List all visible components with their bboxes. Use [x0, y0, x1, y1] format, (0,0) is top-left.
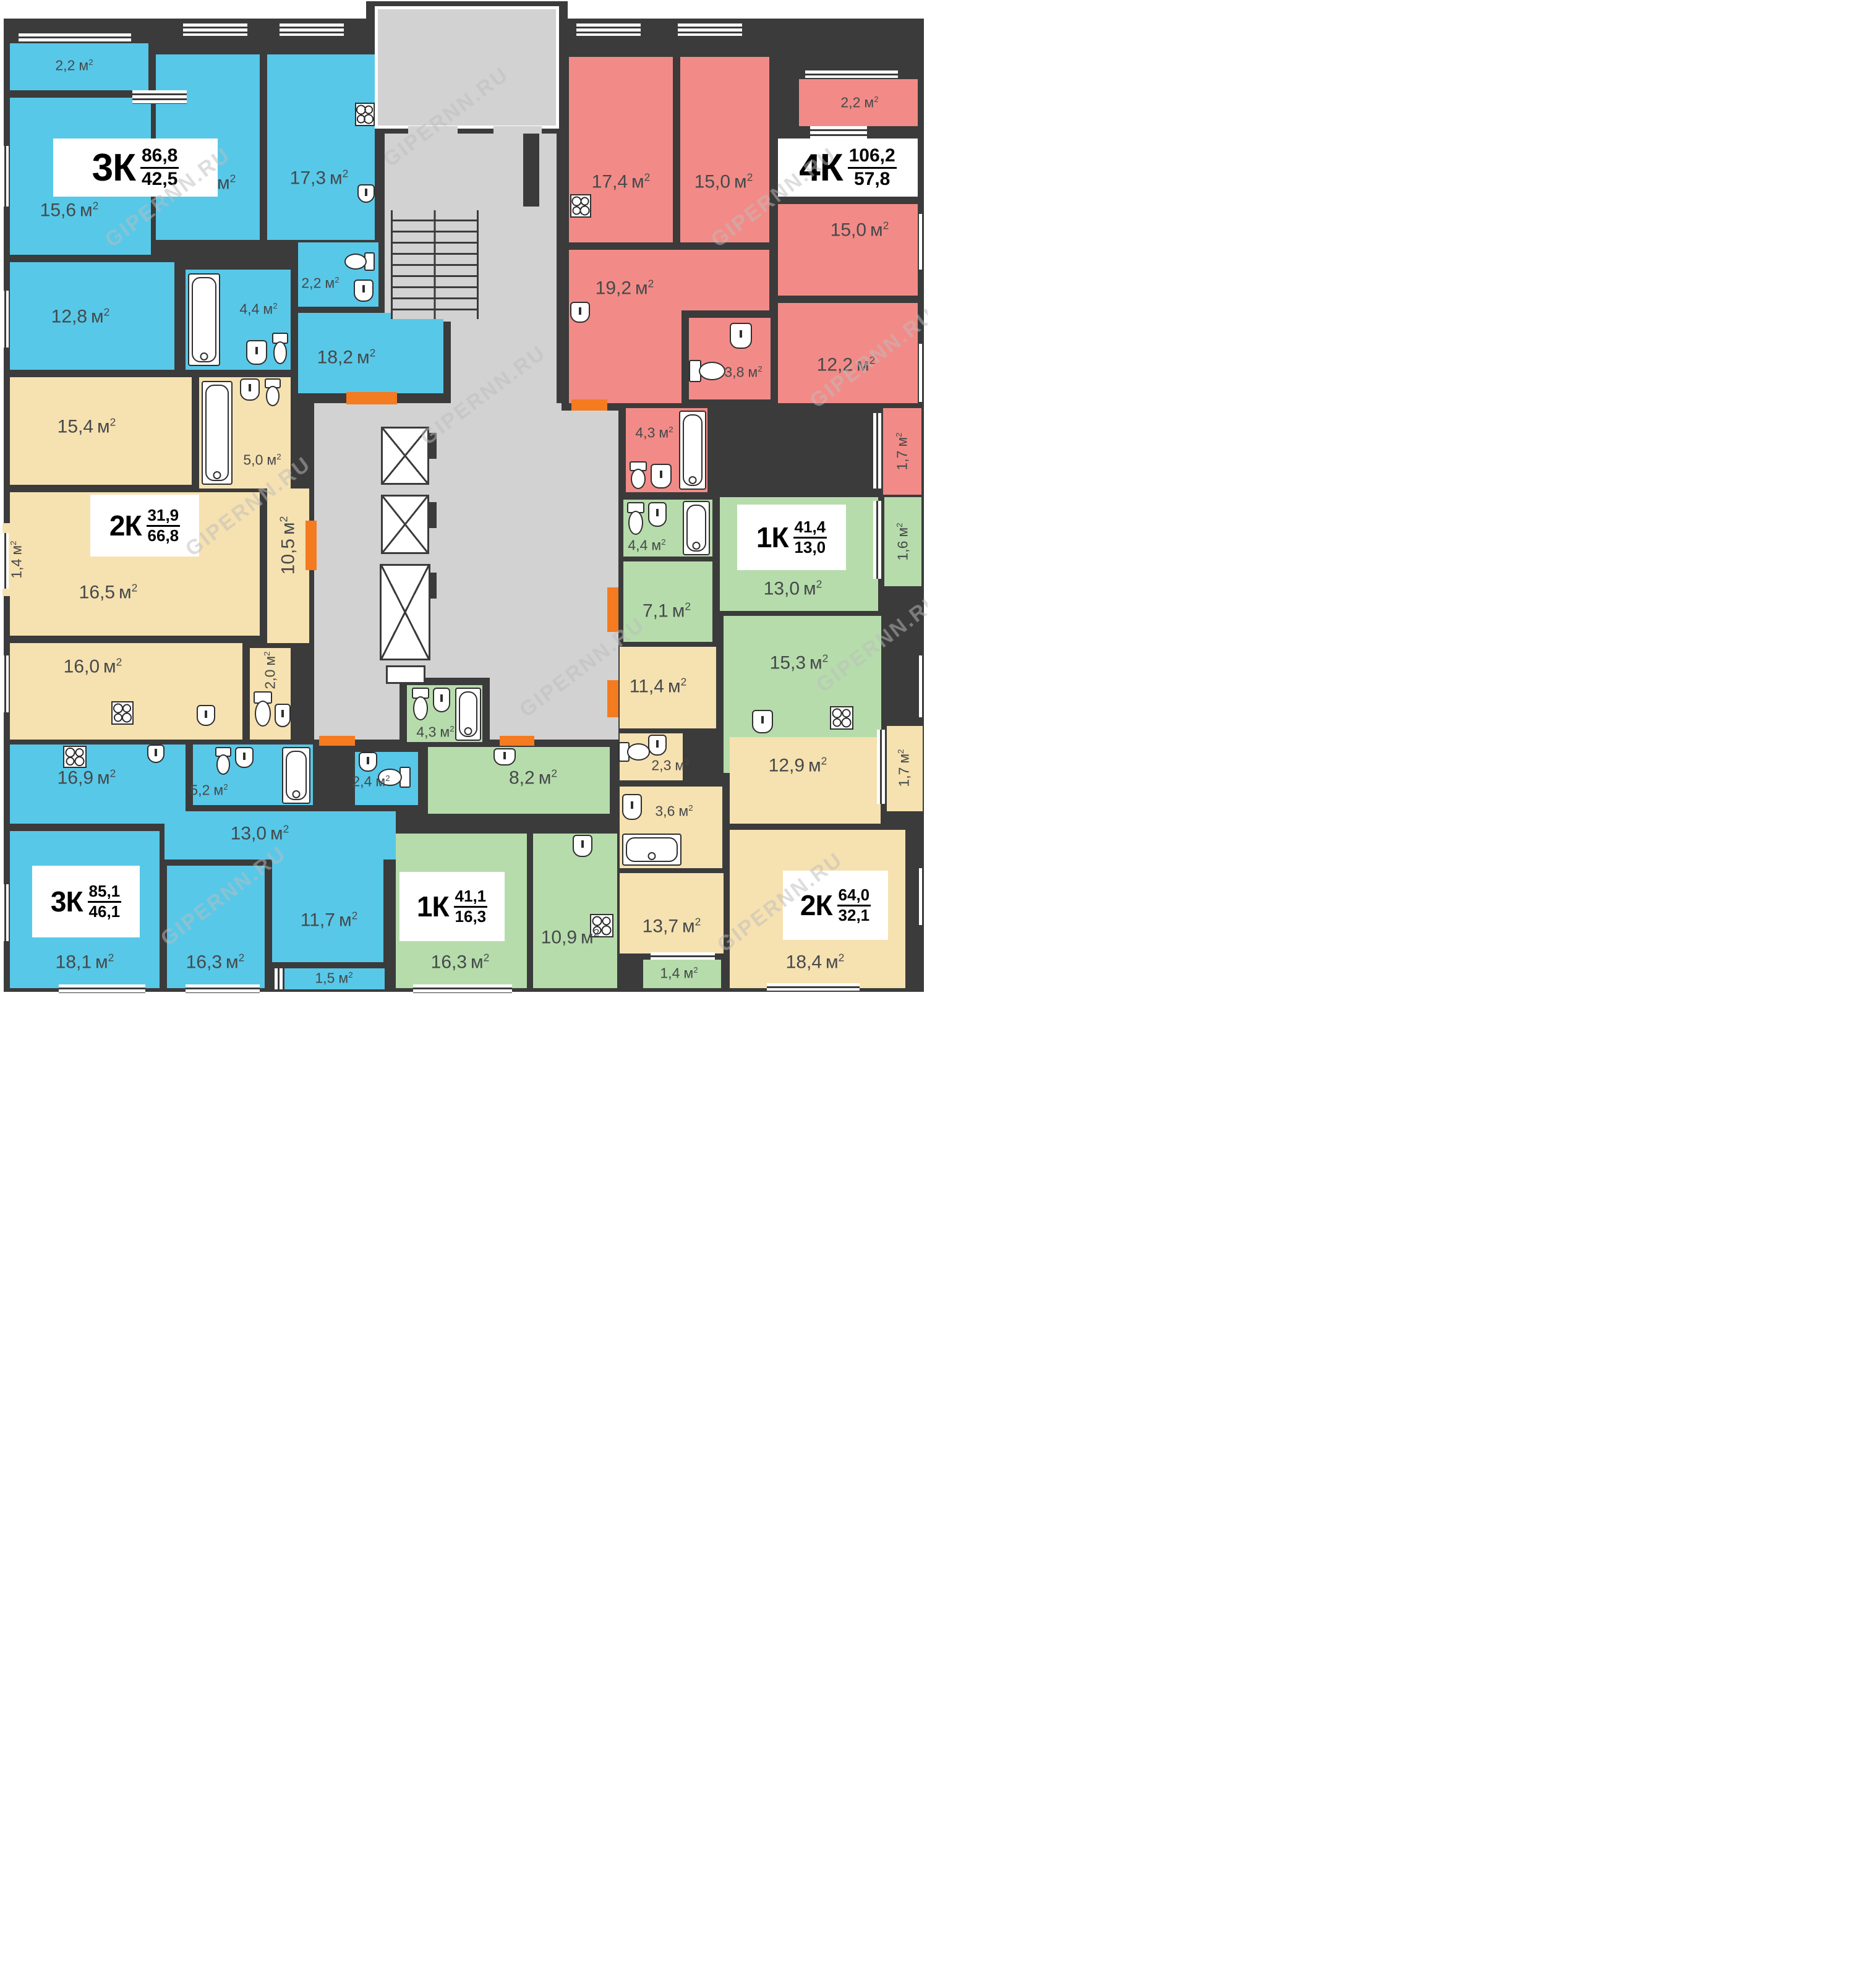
unit: м2: [635, 278, 654, 299]
toilet-icon: [252, 691, 273, 727]
unit: м2: [263, 301, 277, 317]
sink-icon: [648, 735, 667, 756]
window: [678, 23, 742, 36]
toilet-icon: [618, 741, 651, 763]
room-12-9: [730, 737, 881, 824]
window: [183, 23, 247, 36]
area-label: 13,0м2: [764, 578, 822, 600]
area-label: 5,2м2: [190, 782, 228, 799]
area-label: 17,4м2: [592, 171, 651, 193]
bathtub-icon: [282, 747, 310, 804]
area-label: 16,0м2: [64, 656, 122, 678]
area-label: 3,8м2: [724, 364, 762, 381]
sink-icon: [622, 794, 642, 820]
unit: м2: [675, 757, 689, 774]
apartment-area-bottom: 32,1: [837, 907, 871, 925]
staircase: [391, 210, 479, 319]
area-label: 12,2м2: [817, 354, 876, 376]
area-value: 3,6: [655, 803, 675, 819]
area-label: 1,4м2: [9, 540, 25, 578]
area-value: 17,3: [290, 168, 326, 189]
window: [919, 214, 926, 270]
stair-landing: [451, 322, 557, 408]
sink-icon: [433, 688, 450, 712]
apartment-area-bottom: 57,8: [848, 169, 897, 190]
unit: м2: [651, 537, 665, 553]
area-value: 3,8: [724, 364, 744, 380]
area-value: 15,4: [58, 417, 93, 437]
unit: м2: [857, 355, 875, 375]
floor-plan: 2,2м2 15,6м2 14,1м2 17,3м2 12,8м2 4,4м2 …: [0, 0, 928, 994]
window: [1, 655, 9, 712]
unit: м2: [91, 307, 109, 327]
door-threshold-apt-4k: [571, 399, 607, 411]
area-label: 1,5м2: [315, 970, 352, 987]
unit: м2: [103, 657, 122, 677]
apartment-area-top: 41,4: [793, 518, 827, 539]
unit: м2: [213, 782, 228, 798]
apartment-label-1k-mid-right[interactable]: 1К 41,413,0: [737, 505, 846, 570]
area-value: 2,2: [55, 58, 75, 74]
unit: м2: [826, 952, 844, 973]
unit: м2: [226, 952, 244, 973]
window-sill: [132, 90, 187, 104]
sink-icon: [357, 184, 375, 203]
elevator-panel: [386, 665, 425, 684]
window: [1, 533, 9, 589]
area-label: 1,6м2: [895, 523, 912, 560]
apartment-type: 2К: [800, 889, 832, 922]
window: [576, 23, 641, 36]
area-value: 13,0: [764, 579, 800, 599]
area-value: 1,4: [9, 559, 25, 579]
unit: м2: [734, 172, 753, 192]
unit: м2: [217, 173, 236, 194]
toilet-icon: [344, 251, 375, 272]
area-label: 13,7м2: [643, 916, 701, 937]
sink-icon: [147, 744, 164, 763]
window: [186, 984, 260, 993]
area-value: 16,9: [58, 768, 93, 788]
area-label: 2,2м2: [55, 58, 93, 74]
area-value: 15,0: [831, 220, 866, 241]
area-label: 3,6м2: [655, 803, 693, 820]
unit: м2: [119, 582, 137, 603]
apartment-type: 1К: [756, 521, 788, 554]
unit: м2: [539, 768, 557, 788]
unit: м2: [864, 95, 878, 111]
elevator-shaft: [381, 495, 429, 554]
apartment-label-2k-bottom-right[interactable]: 2К 64,032,1: [783, 871, 888, 940]
area-label: 18,2м2: [317, 347, 376, 369]
elevator-shaft: [381, 427, 429, 485]
area-label: 15,0м2: [694, 171, 753, 193]
apartment-type: 3К: [51, 885, 83, 918]
unit: м2: [375, 774, 390, 790]
apartment-area-top: 86,8: [140, 145, 179, 169]
bathtub-icon: [679, 411, 706, 490]
area-label: 17,3м2: [290, 168, 349, 189]
area-value: 18,2: [317, 348, 353, 368]
core-wall: [523, 134, 539, 207]
sink-icon: [573, 835, 592, 857]
unit: м2: [278, 516, 299, 535]
unit: м2: [748, 364, 762, 380]
area-value: 8,2: [509, 768, 535, 788]
unit: м2: [97, 417, 116, 437]
stove-icon: [355, 103, 375, 126]
area-label: 10,5м2: [278, 516, 299, 575]
area-value: 15,0: [694, 172, 730, 192]
area-label: 18,4м2: [786, 952, 845, 973]
door-threshold-apt-3k-top-left: [346, 392, 397, 404]
sink-icon: [197, 705, 215, 726]
area-label: 2,2м2: [301, 275, 339, 292]
toilet-icon: [689, 359, 726, 383]
elevator-shaft: [380, 564, 430, 660]
area-label: 10,9м2: [541, 927, 600, 949]
area-value: 15,6: [40, 200, 76, 221]
area-value: 1,7: [896, 767, 912, 787]
window: [805, 70, 898, 78]
area-value: 16,3: [431, 952, 467, 973]
window-sill: [810, 126, 867, 139]
area-label: 5,0м2: [243, 452, 281, 469]
area-value: 16,3: [186, 952, 222, 973]
balcony-glazing: [873, 413, 882, 488]
toilet-icon: [626, 502, 646, 535]
sink-icon: [752, 710, 773, 733]
area-value: 5,2: [190, 782, 210, 798]
window: [1, 884, 9, 941]
window: [59, 984, 145, 993]
room-10-9: [533, 834, 617, 988]
sink-icon: [240, 378, 260, 401]
unit: м2: [894, 432, 910, 446]
area-label: 15,0м2: [831, 220, 889, 241]
bathtub-icon: [188, 273, 220, 366]
toilet-icon: [271, 333, 289, 365]
apartment-area-top: 31,9: [147, 506, 181, 527]
room-17-3: [267, 54, 375, 240]
window: [919, 344, 926, 402]
unit: м2: [683, 965, 698, 981]
apartment-area-top: 64,0: [837, 886, 871, 907]
window: [767, 983, 860, 991]
unit: м2: [95, 952, 114, 973]
area-label: 2,0м2: [262, 651, 279, 689]
stove-icon: [111, 701, 134, 725]
sink-icon: [275, 704, 291, 727]
bathtub-icon: [455, 688, 481, 741]
unit: м2: [810, 653, 828, 673]
unit: м2: [808, 756, 827, 776]
unit: м2: [668, 676, 686, 697]
unit: м2: [339, 910, 357, 931]
unit: м2: [870, 220, 889, 241]
unit: м2: [682, 916, 701, 937]
unit: м2: [325, 275, 339, 291]
area-value: 13,7: [643, 916, 678, 937]
area-label: 16,9м2: [58, 767, 116, 789]
area-value: 2,4: [352, 774, 372, 790]
area-label: 7,1м2: [643, 600, 691, 622]
sink-icon: [648, 502, 667, 527]
room-15-0-b: [778, 204, 918, 296]
area-value: 13,0: [231, 824, 267, 844]
unit: м2: [270, 824, 289, 844]
area-value: 12,2: [817, 355, 853, 375]
area-value: 4,4: [239, 301, 259, 317]
area-label: 12,8м2: [51, 306, 110, 328]
area-label: 1,7м2: [894, 432, 911, 470]
area-label: 16,5м2: [79, 582, 138, 604]
unit: м2: [80, 200, 98, 221]
unit: м2: [267, 452, 281, 468]
unit: м2: [440, 724, 454, 740]
door-threshold-apt-1k-bottom-middle: [500, 736, 534, 746]
area-label: 4,3м2: [416, 724, 454, 741]
toilet-icon: [411, 688, 430, 721]
unit: м2: [631, 172, 650, 192]
unit: м2: [895, 523, 911, 537]
window: [280, 23, 344, 36]
area-value: 1,6: [895, 541, 911, 561]
unit: м2: [659, 425, 673, 441]
area-value: 2,3: [651, 757, 671, 774]
area-label: 2,2м2: [840, 95, 878, 111]
area-value: 2,2: [301, 275, 321, 291]
area-value: 2,2: [840, 95, 860, 111]
unit: м2: [330, 168, 348, 189]
sink-icon: [246, 340, 267, 365]
apartment-area-top: 41,1: [454, 887, 488, 908]
toilet-icon: [214, 747, 233, 775]
apartment-area-bottom: 13,0: [793, 539, 827, 557]
area-value: 12,8: [51, 307, 87, 327]
area-value: 4,3: [416, 724, 436, 740]
area-value: 10,5: [278, 539, 299, 574]
balcony-glazing: [873, 501, 882, 579]
apartment-type: 1К: [417, 890, 449, 923]
unit: м2: [262, 651, 278, 665]
room-13-7: [620, 873, 724, 953]
area-value: 11,7: [301, 910, 335, 931]
unit: м2: [9, 540, 25, 555]
area-label: 4,4м2: [239, 301, 277, 318]
apartment-area-bottom: 16,3: [454, 908, 488, 926]
toilet-icon: [263, 378, 282, 407]
window: [919, 868, 926, 925]
apartment-label-2k-mid-left[interactable]: 2К 31,966,8: [90, 495, 199, 557]
area-value: 19,2: [596, 278, 631, 299]
area-label: 11,4м2: [630, 676, 686, 698]
area-label: 18,1м2: [56, 952, 114, 973]
area-value: 1,5: [315, 970, 335, 986]
area-value: 5,0: [243, 452, 263, 468]
sink-icon: [493, 748, 516, 766]
door-threshold-apt-2k-bottom-right: [607, 680, 618, 717]
area-value: 4,3: [635, 425, 655, 441]
apartment-area-bottom: 42,5: [140, 169, 179, 190]
sink-icon: [235, 747, 254, 768]
area-value: 1,4: [660, 965, 680, 981]
unit: м2: [471, 952, 489, 973]
unit: м2: [896, 749, 912, 763]
balcony-glazing: [275, 968, 283, 989]
apartment-area-bottom: 66,8: [147, 527, 181, 545]
area-value: 18,4: [786, 952, 822, 973]
area-label: 1,7м2: [896, 749, 913, 787]
area-value: 17,4: [592, 172, 628, 192]
area-value: 7,1: [643, 601, 669, 621]
window: [1, 291, 9, 348]
unit: м2: [338, 970, 352, 986]
area-label: 16,3м2: [431, 952, 490, 973]
stove-icon: [830, 706, 853, 730]
area-label: 1,4м2: [660, 965, 698, 982]
unit: м2: [678, 803, 693, 819]
unit: м2: [581, 928, 599, 948]
room-15-0-a: [680, 57, 769, 242]
area-label: 12,9м2: [769, 755, 827, 777]
area-value: 15,3: [770, 653, 806, 673]
unit: м2: [357, 348, 375, 368]
stove-icon: [570, 194, 591, 218]
area-value: 16,0: [64, 657, 100, 677]
door-threshold-apt-3k-bottom-left: [319, 736, 355, 746]
unit: м2: [97, 768, 116, 788]
unit: м2: [803, 579, 822, 599]
door-threshold-apt-1k-mid-right: [607, 587, 618, 632]
area-label: 2,3м2: [651, 757, 689, 774]
sink-icon: [651, 464, 672, 488]
apartment-type: 3К: [92, 146, 135, 190]
unit: м2: [672, 601, 691, 621]
area-label: 19,2м2: [596, 278, 654, 299]
apartment-area-bottom: 46,1: [88, 903, 122, 921]
area-label: 8,2м2: [509, 767, 557, 789]
room-12-2: [778, 303, 918, 403]
area-value: 18,1: [56, 952, 92, 973]
apartment-area-top: 106,2: [848, 145, 897, 169]
area-label: 4,3м2: [635, 425, 673, 442]
area-label: 2,4м2: [352, 774, 390, 790]
sink-icon: [570, 302, 590, 323]
entrance-vestibule: [375, 6, 559, 129]
area-label: 16,3м2: [186, 952, 245, 973]
bathtub-icon: [683, 501, 710, 555]
area-label: 15,4м2: [58, 416, 116, 438]
window: [1, 146, 9, 207]
apartment-label-4k-top-right[interactable]: 4К 106,257,8: [778, 139, 918, 197]
area-value: 11,4: [630, 676, 664, 697]
apartment-type: 4К: [799, 146, 842, 190]
bathtub-icon: [202, 381, 233, 485]
area-label: 11,7м2: [301, 910, 357, 931]
balcony-glazing: [877, 730, 886, 804]
area-label: 15,6м2: [40, 200, 99, 221]
apartment-label-3k-top-left[interactable]: 3К 86,842,5: [53, 139, 218, 197]
apartment-type: 2К: [109, 509, 142, 542]
balcony-glazing: [651, 952, 715, 960]
area-value: 4,4: [628, 537, 647, 553]
area-label: 15,3м2: [770, 652, 829, 674]
window: [919, 655, 926, 717]
sink-icon: [730, 323, 752, 349]
area-value: 1,7: [894, 451, 910, 471]
toilet-icon: [628, 461, 648, 490]
window: [19, 33, 131, 42]
stove-icon: [63, 746, 87, 768]
apartment-label-1k-bottom-middle[interactable]: 1К 41,116,3: [399, 872, 505, 941]
area-value: 16,5: [79, 582, 115, 603]
area-label: 13,0м2: [231, 823, 289, 845]
unit: м2: [79, 58, 93, 74]
area-value: 2,0: [262, 670, 278, 689]
sink-icon: [359, 752, 377, 772]
area-value: 10,9: [541, 928, 577, 948]
sink-icon: [354, 279, 374, 302]
bathtub-icon: [622, 834, 681, 866]
area-value: 12,9: [769, 756, 805, 776]
door-threshold-apt-2k-mid-left: [305, 521, 317, 570]
window: [413, 984, 512, 993]
apartment-label-3k-bottom-left[interactable]: 3К 85,146,1: [32, 866, 140, 937]
apartment-area-top: 85,1: [88, 882, 122, 903]
area-label: 4,4м2: [628, 537, 665, 554]
